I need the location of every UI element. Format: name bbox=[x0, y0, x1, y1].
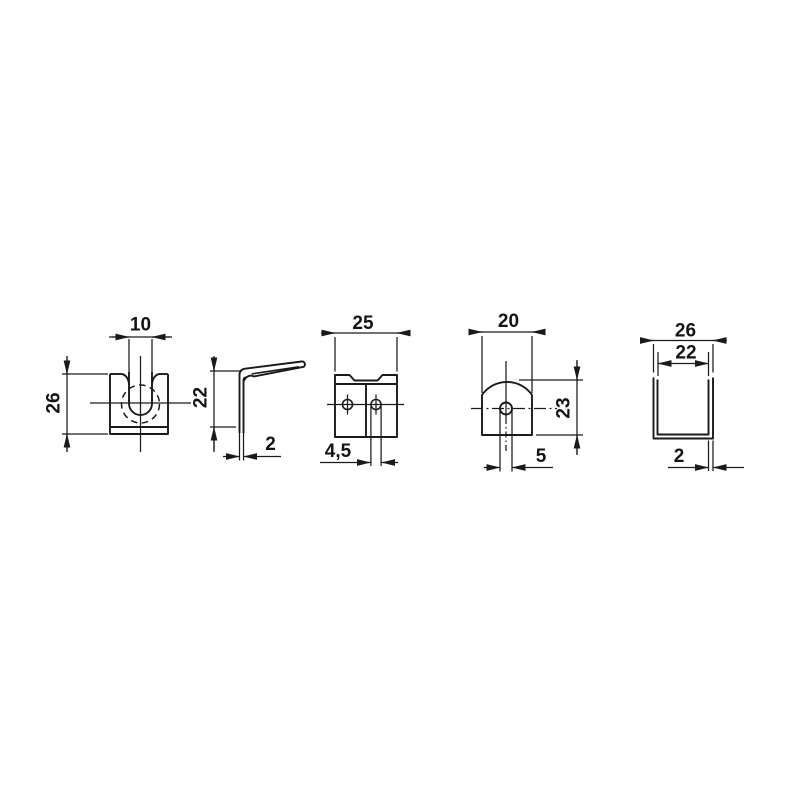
view-round-tab: 20 23 5 bbox=[471, 311, 583, 472]
channel-inner-contour bbox=[658, 380, 709, 435]
view-plate-front: 25 4,5 bbox=[320, 313, 407, 466]
dim-label-plate-width: 25 bbox=[352, 313, 374, 334]
drawing-sheet: 10 26 22 2 bbox=[0, 0, 800, 800]
dim-label-hole-diameter: 4,5 bbox=[325, 441, 352, 462]
dim-label-leg-height: 22 bbox=[191, 387, 212, 408]
dim-label-inner-width: 22 bbox=[675, 343, 696, 364]
dim-label-tab-width: 20 bbox=[498, 311, 519, 332]
dim-label-slot-width: 10 bbox=[130, 315, 151, 336]
leg-inner-line bbox=[244, 377, 246, 433]
dim-label-thickness: 2 bbox=[265, 434, 276, 455]
slot-fillet-right bbox=[152, 374, 160, 385]
technical-drawing: 10 26 22 2 bbox=[0, 0, 800, 800]
channel-outer-contour bbox=[654, 378, 714, 439]
leg-and-blade-outline bbox=[240, 361, 305, 433]
view-clip-side: 22 2 bbox=[191, 356, 305, 461]
dim-label-tab-height: 23 bbox=[554, 397, 575, 418]
dim-label-height: 26 bbox=[44, 392, 65, 413]
dim-label-wall-thickness: 2 bbox=[674, 446, 685, 467]
slot-fillet-left bbox=[121, 374, 129, 385]
view-clip-front: 10 26 bbox=[44, 315, 192, 453]
dim-label-tab-hole-width: 5 bbox=[536, 446, 547, 467]
dim-label-outer-width: 26 bbox=[675, 321, 696, 342]
view-u-channel: 26 22 2 bbox=[640, 321, 744, 472]
